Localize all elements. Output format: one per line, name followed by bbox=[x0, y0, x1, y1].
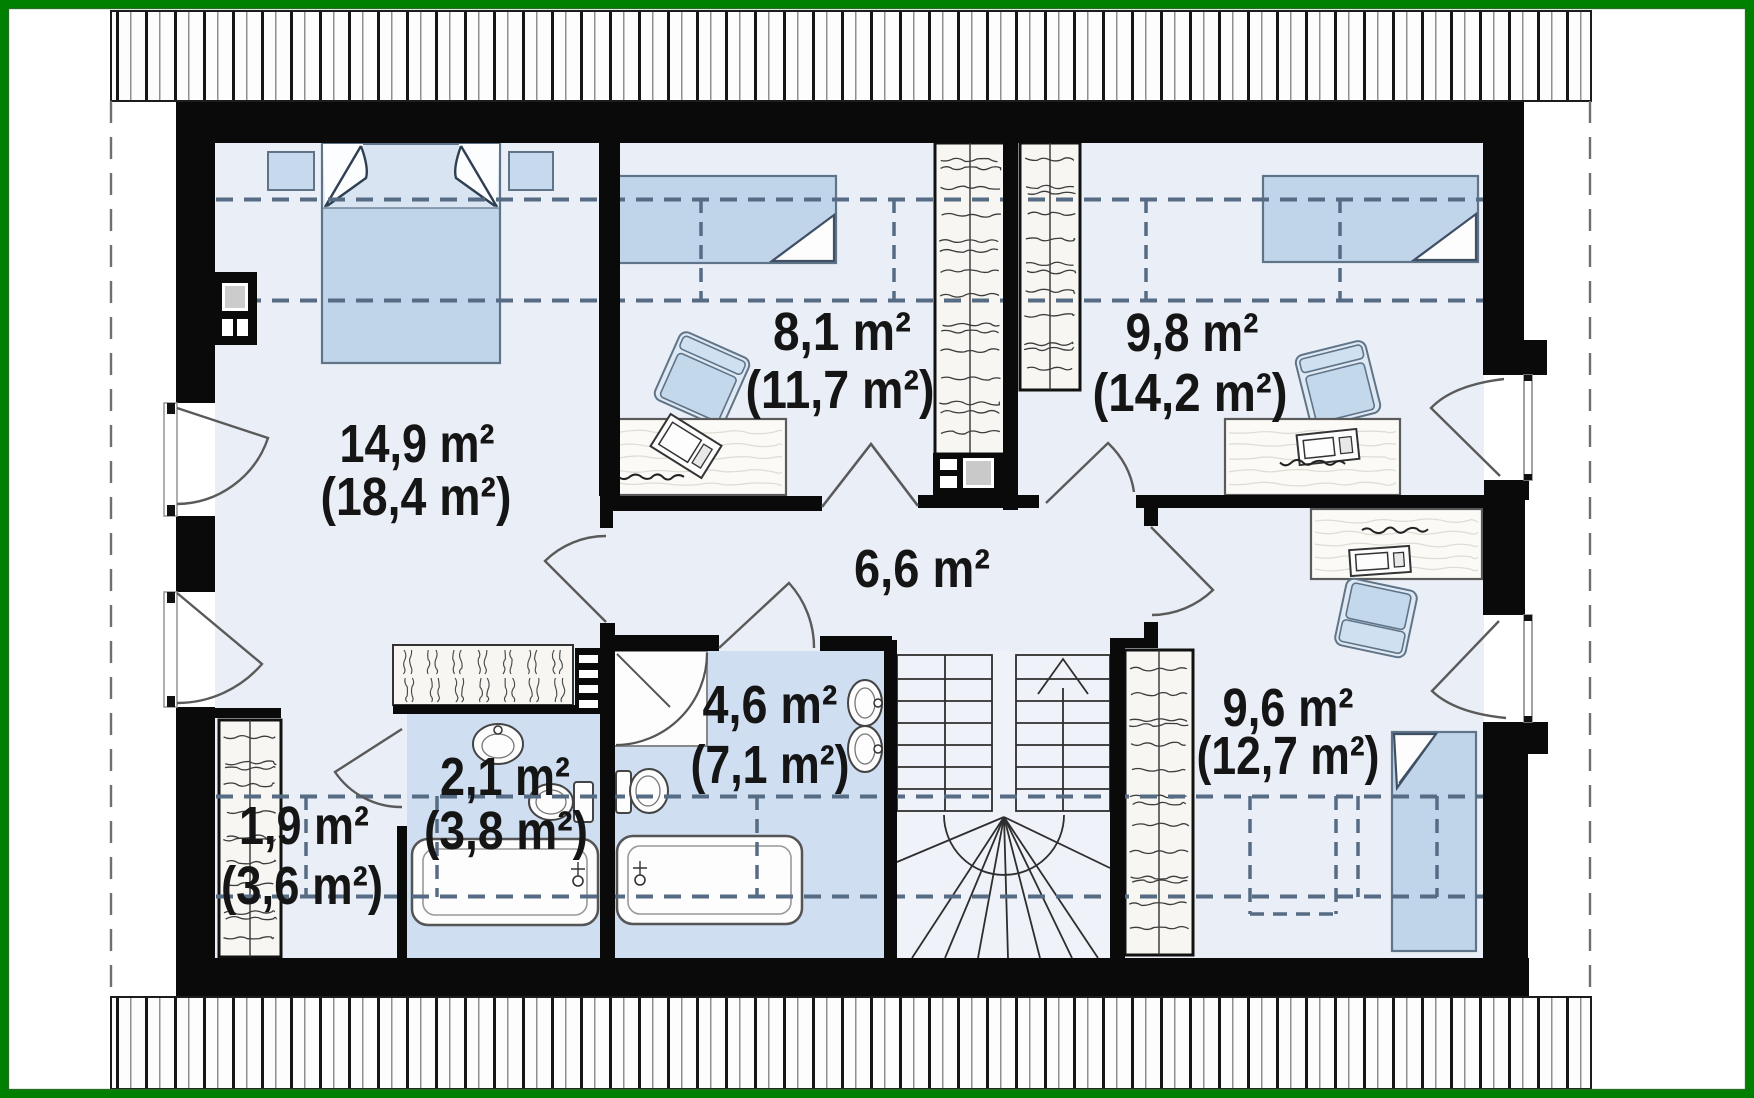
svg-text:(3,6 m²): (3,6 m²) bbox=[221, 856, 383, 916]
svg-text:14,9 m²: 14,9 m² bbox=[340, 414, 495, 474]
svg-text:8,1 m²: 8,1 m² bbox=[773, 302, 911, 362]
svg-text:(11,7 m²): (11,7 m²) bbox=[746, 360, 935, 420]
svg-text:(12,7 m²): (12,7 m²) bbox=[1197, 726, 1380, 786]
svg-text:(18,4 m²): (18,4 m²) bbox=[321, 467, 512, 527]
svg-text:(3,8 m²): (3,8 m²) bbox=[424, 801, 588, 861]
svg-text:9,8 m²: 9,8 m² bbox=[1126, 303, 1259, 363]
svg-text:1,9 m²: 1,9 m² bbox=[239, 796, 369, 856]
svg-text:(7,1 m²): (7,1 m²) bbox=[691, 735, 850, 795]
svg-text:2,1 m²: 2,1 m² bbox=[440, 747, 570, 807]
svg-text:4,6 m²: 4,6 m² bbox=[703, 675, 838, 735]
svg-text:6,6 m²: 6,6 m² bbox=[854, 539, 990, 599]
svg-text:(14,2 m²): (14,2 m²) bbox=[1093, 363, 1288, 423]
